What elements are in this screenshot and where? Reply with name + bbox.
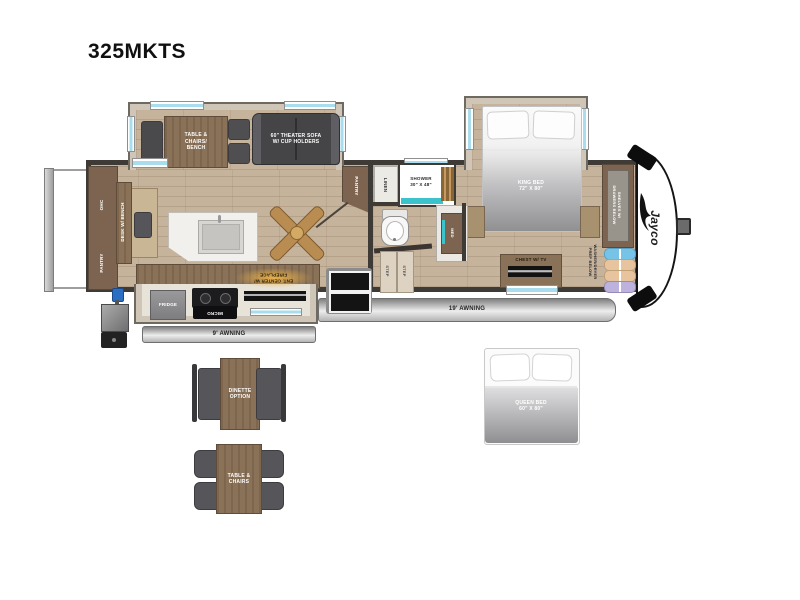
fridge: FRIDGE — [150, 290, 186, 320]
rear-pantry-label-wrap: PANTRY — [98, 243, 106, 283]
awning-9: 9' AWNING — [142, 326, 316, 343]
pillow — [533, 110, 576, 139]
queen-bed-label-wrap: QUEEN BED 60" X 80" — [491, 398, 571, 414]
pillow — [487, 110, 530, 139]
entry-step — [329, 292, 371, 313]
griddle-base — [101, 332, 127, 348]
nightstand — [465, 206, 485, 238]
griddle-knob — [112, 338, 116, 342]
shower-water — [401, 198, 443, 204]
bath-wall-right — [462, 203, 466, 261]
linen-label: LINEN — [382, 178, 388, 193]
desk-bench-seat — [134, 212, 152, 238]
option-table: TABLE & CHAIRS — [216, 444, 262, 514]
burner — [220, 293, 231, 304]
desk-bench-label: DESK W/ BENCH — [120, 202, 126, 241]
window — [132, 158, 168, 168]
bed-sheet-fold — [483, 149, 579, 151]
shelves-label: SHELVES W/ DRAWERS BELOW — [612, 185, 622, 224]
mid-pantry-label-wrap: PANTRY — [352, 168, 360, 204]
outside-griddle — [101, 304, 129, 332]
sofa-armrest — [253, 114, 261, 164]
entry-steps — [326, 268, 372, 314]
window — [465, 108, 474, 150]
brand-logo: Jayco — [648, 210, 662, 246]
ent-center-label: ENT. CENTER W/ FIREPLACE — [254, 272, 293, 284]
island-sink — [202, 224, 240, 250]
desk-label-wrap: DESK W/ BENCH — [119, 192, 127, 252]
shower-label: SHOWER 30" X 48" — [410, 176, 432, 188]
storage-bin — [604, 281, 636, 293]
fridge-label: FRIDGE — [159, 302, 177, 308]
step-label: STEP — [384, 265, 389, 276]
shower-label-wrap: SHOWER 30" X 48" — [399, 171, 443, 193]
king-bed-label: KING BED 72" X 80" — [518, 180, 544, 193]
window — [150, 101, 204, 110]
fan-hub — [290, 226, 304, 240]
stove — [192, 288, 238, 308]
king-bed-label-wrap: KING BED 72" X 80" — [491, 178, 571, 194]
entry-step — [329, 271, 371, 292]
window — [506, 285, 558, 295]
dinette-table: TABLE & CHAIRS/ BENCH — [164, 116, 228, 168]
tv — [508, 266, 552, 277]
dinette-table-label: TABLE & CHAIRS/ BENCH — [185, 132, 208, 152]
step-label: STEP — [401, 265, 406, 276]
rear-bumper — [44, 168, 54, 292]
toilet-hinge — [393, 238, 396, 241]
dinette-bench-back — [192, 364, 197, 422]
linen-label-wrap: LINEN — [381, 165, 389, 205]
pillow — [490, 353, 531, 381]
fireplace — [244, 291, 306, 301]
window — [127, 116, 135, 152]
ceiling-fan — [262, 198, 330, 266]
fireplace-glow: ENT. CENTER W/ FIREPLACE — [236, 268, 312, 288]
shelves-label-wrap: SHELVES W/ DRAWERS BELOW — [611, 165, 623, 245]
micro-label: MICRO — [207, 310, 223, 316]
window — [284, 101, 336, 110]
vanity-sink — [442, 220, 445, 244]
burner — [200, 293, 211, 304]
table-chairs-label: TABLE & CHAIRS — [228, 473, 251, 486]
bench-seat — [141, 121, 163, 163]
ohc-label: OHC — [99, 200, 105, 211]
chest-tv-label: CHEST W/ TV — [515, 257, 546, 263]
model-title: 325MKTS — [88, 40, 186, 64]
med-label-wrap: MED — [448, 220, 456, 246]
option-chair — [260, 482, 284, 510]
dinette-option-label: DINETTE OPTION — [229, 388, 252, 401]
microwave: MICRO — [193, 306, 237, 319]
washer-dryer-label-wrap: WASHER/DRYER PREP BELOW — [588, 232, 598, 292]
queen-blanket — [485, 388, 578, 443]
dinette-bench — [256, 368, 282, 420]
washer-dryer-label: WASHER/DRYER PREP BELOW — [588, 245, 598, 280]
awning-19-label: 19' AWNING — [449, 306, 485, 314]
dinette-bench-back — [281, 364, 286, 422]
pillow — [532, 353, 573, 381]
fireplace-glass — [250, 308, 302, 316]
step-label-wrap: STEP — [400, 256, 408, 286]
awning-9-label: 9' AWNING — [213, 331, 246, 339]
sofa-armrest — [331, 114, 339, 164]
med-cabinet-label: MED — [449, 228, 454, 238]
dinette-option-table: DINETTE OPTION — [220, 358, 260, 430]
ohc-label-wrap: OHC — [98, 185, 106, 225]
floorplan-canvas: 325MKTS TABLE & CHAIRS/ BENCH 60" THEATE… — [0, 0, 800, 600]
brand-logo-wrap: Jayco — [648, 203, 662, 253]
hitch-pin — [676, 218, 691, 235]
chair — [228, 143, 250, 164]
mid-pantry-label: PANTRY — [353, 176, 359, 195]
chair — [228, 119, 250, 140]
step-label-wrap: STEP — [383, 256, 391, 286]
bath-wall-seg — [371, 202, 398, 206]
option-chair — [260, 450, 284, 478]
rear-pantry-label: PANTRY — [99, 253, 105, 272]
option-chair — [194, 450, 218, 478]
queen-bed-label: QUEEN BED 60" X 80" — [515, 400, 547, 413]
theater-sofa-label: 60" THEATER SOFA W/ CUP HOLDERS — [271, 133, 322, 146]
option-chair — [194, 482, 218, 510]
faucet — [218, 215, 221, 223]
theater-sofa: 60" THEATER SOFA W/ CUP HOLDERS — [252, 113, 340, 165]
